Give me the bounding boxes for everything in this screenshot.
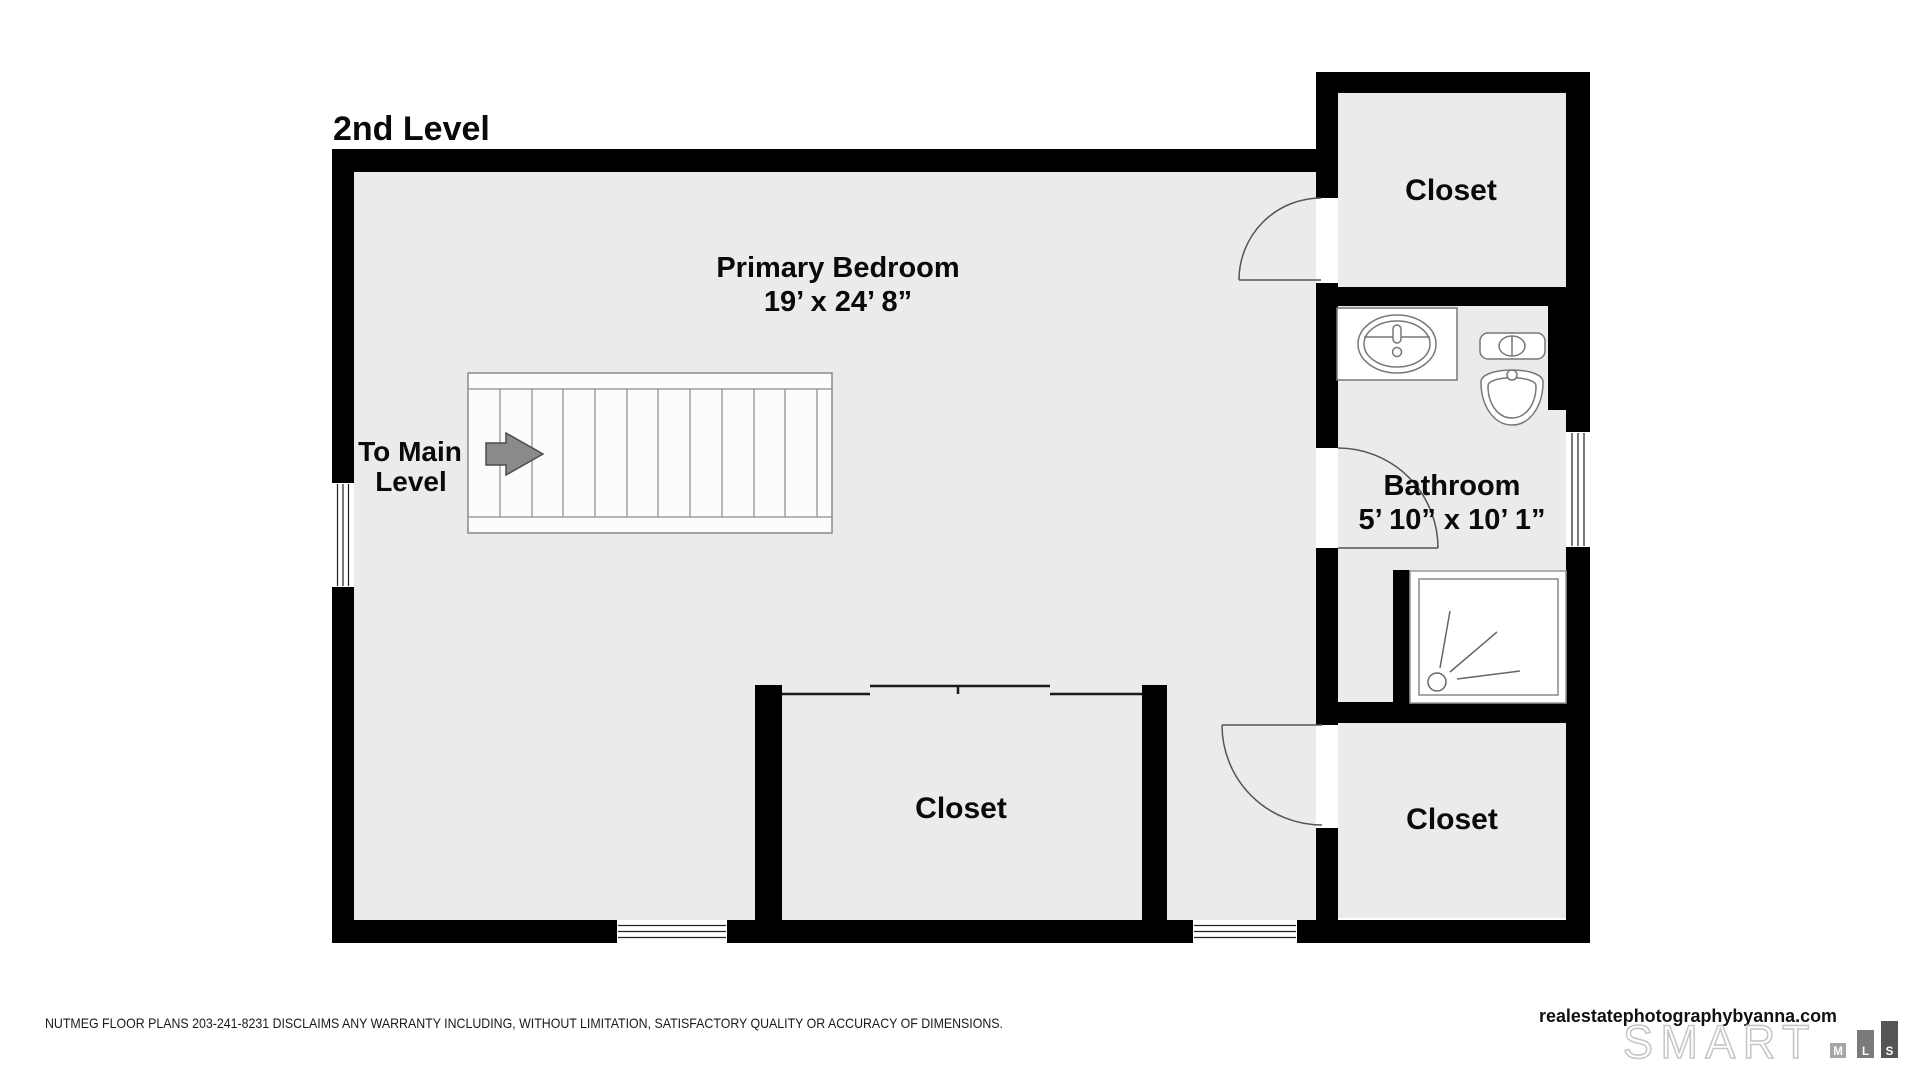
shower-icon <box>1410 571 1566 703</box>
wall-bottom <box>332 920 1590 943</box>
window-left-wall <box>332 483 354 587</box>
bathroom-label: Bathroom <box>1384 470 1521 502</box>
footer-disclaimer: NUTMEG FLOOR PLANS 203-241-8231 DISCLAIM… <box>45 1015 1003 1031</box>
mls-m-letter: M <box>1833 1046 1843 1058</box>
wall-shower-left <box>1393 570 1410 723</box>
smart-logo-word: SMART <box>1623 1015 1817 1068</box>
closet-bottom-middle-label: Closet <box>915 792 1007 825</box>
mls-s-letter: S <box>1886 1046 1894 1058</box>
page-title: 2nd Level <box>333 110 490 148</box>
wall-bedroom-top <box>332 149 1338 172</box>
stairs-label-line1: To Main <box>358 436 462 467</box>
window-bottom-wall-right <box>1193 920 1297 943</box>
staircase <box>468 373 832 533</box>
window-bottom-wall-left <box>617 920 727 943</box>
closet-right-post <box>1142 685 1167 923</box>
wall-shower-closet-divider <box>1338 702 1590 723</box>
primary-bedroom-label: Primary Bedroom <box>716 252 959 284</box>
wall-plumbing-chase <box>1548 306 1566 410</box>
window-right-wall <box>1566 432 1590 547</box>
primary-bedroom-dimensions: 19’ x 24’ 8” <box>764 286 912 318</box>
sink-icon <box>1337 308 1457 380</box>
door-gap-closet-top-right <box>1316 198 1338 283</box>
closet-top-right-label: Closet <box>1405 174 1497 207</box>
door-gap-closet-bottom-right <box>1316 725 1338 828</box>
smart-mls-logo: SMART M L S <box>1623 1015 1898 1068</box>
mls-l-letter: L <box>1862 1046 1869 1058</box>
closet-left-post <box>755 685 782 923</box>
door-gap-bathroom <box>1316 448 1338 548</box>
floor-plan-drawing: 2nd Level Primary Bedroom 19’ x 24’ 8” C… <box>0 0 1920 1080</box>
primary-bedroom-floor <box>354 172 1316 920</box>
bathroom-dimensions: 5’ 10” x 10’ 1” <box>1358 504 1545 536</box>
closet-bottom-right-label: Closet <box>1406 803 1498 836</box>
wall-wing-top <box>1316 72 1590 93</box>
stairs-label-line2: Level <box>375 466 447 497</box>
toilet-icon <box>1480 333 1545 425</box>
floor-plan-page: 2nd Level Primary Bedroom 19’ x 24’ 8” C… <box>0 0 1920 1080</box>
wall-closet-tr-bottom <box>1338 287 1590 306</box>
